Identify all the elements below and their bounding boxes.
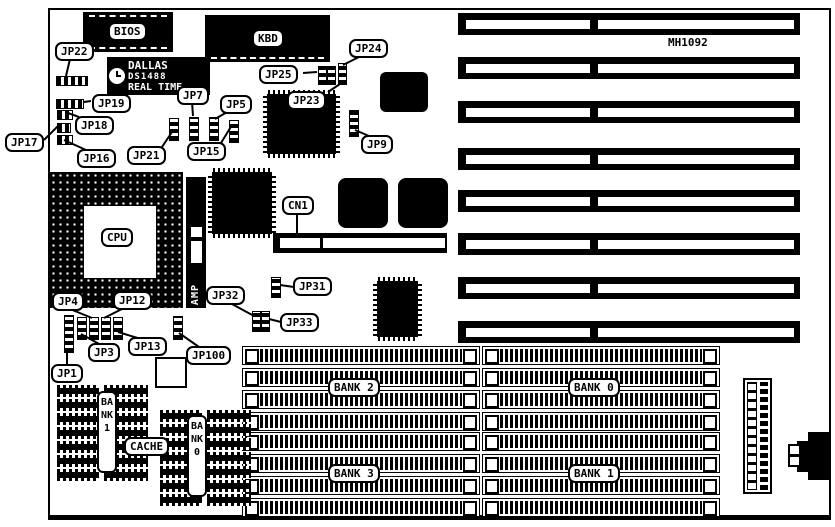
simm-bank-label: BANK 1 — [568, 464, 620, 483]
board-model: MH1092 — [668, 36, 708, 49]
jp33-label: JP33 — [280, 313, 319, 332]
cache-bank1-label: BANK1 — [97, 391, 117, 473]
leader-line — [221, 125, 232, 143]
leader-line — [303, 72, 317, 73]
jp15-label: JP15 — [187, 142, 226, 161]
cpu-label: CPU — [101, 228, 133, 247]
leader-line — [328, 84, 340, 92]
kbd-label: KBD — [252, 29, 284, 48]
jp23-label: JP23 — [287, 91, 326, 110]
leader-line — [84, 101, 91, 102]
jp17-label: JP17 — [5, 133, 44, 152]
jp7-label: JP7 — [177, 86, 209, 105]
cache-label: CACHE — [124, 437, 169, 456]
simm-bank-label: BANK 0 — [568, 378, 620, 397]
leader-line — [280, 285, 294, 287]
jp12-label: JP12 — [113, 291, 152, 310]
jp31-label: JP31 — [293, 277, 332, 296]
jp18-label: JP18 — [75, 116, 114, 135]
leader-line — [66, 59, 70, 76]
jp1-label: JP1 — [51, 364, 83, 383]
jp13-label: JP13 — [128, 337, 167, 356]
motherboard-diagram: BIOS KBD DALLAS DS1488 REAL TIME CPU AMP — [0, 0, 835, 527]
jp32-label: JP32 — [206, 286, 245, 305]
jp100-label: JP100 — [186, 346, 231, 365]
jp24-label: JP24 — [349, 39, 388, 58]
bios-label: BIOS — [108, 22, 147, 41]
leader-line — [162, 132, 172, 147]
jp25-label: JP25 — [259, 65, 298, 84]
jp3-label: JP3 — [88, 343, 120, 362]
jp9-label: JP9 — [361, 135, 393, 154]
jp22-label: JP22 — [55, 42, 94, 61]
leader-line — [179, 333, 199, 347]
leader-line — [44, 126, 58, 140]
jp16-label: JP16 — [77, 149, 116, 168]
jp5-label: JP5 — [220, 95, 252, 114]
cn1-label: CN1 — [282, 196, 314, 215]
simm-bank-label: BANK 3 — [328, 464, 380, 483]
leader-line — [232, 304, 254, 316]
jp21-label: JP21 — [127, 146, 166, 165]
simm-bank-label: BANK 2 — [328, 378, 380, 397]
cache-bank0-label: BANK0 — [187, 415, 207, 497]
jp19-label: JP19 — [92, 94, 131, 113]
jp4-label: JP4 — [52, 292, 84, 311]
